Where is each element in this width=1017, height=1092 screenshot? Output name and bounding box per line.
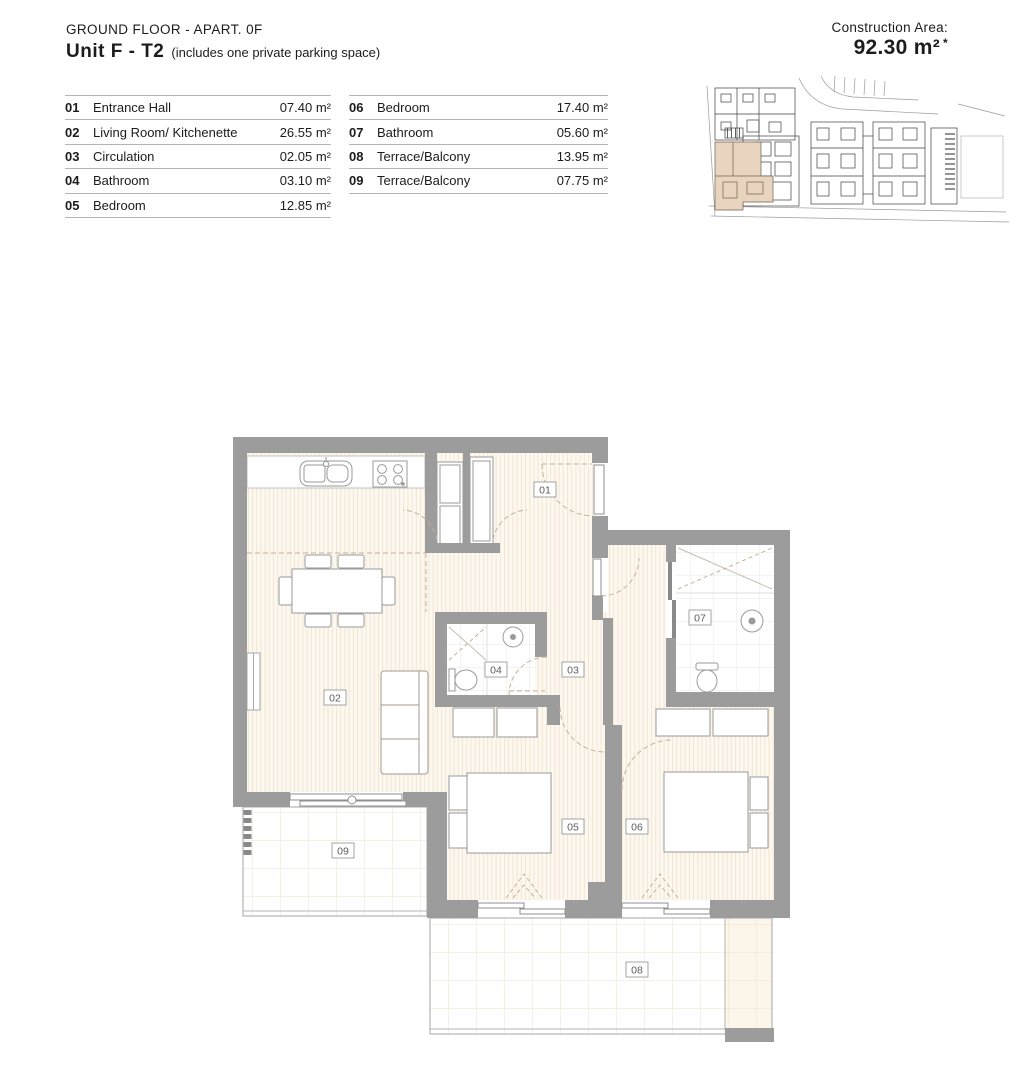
washbasin xyxy=(503,627,523,647)
site-building-right xyxy=(931,128,1003,204)
radiator xyxy=(247,653,260,710)
dining-table xyxy=(292,569,382,613)
kitchen xyxy=(247,456,425,488)
room-label-06: 06 xyxy=(626,819,648,834)
terrace-09 xyxy=(243,807,427,916)
svg-text:08: 08 xyxy=(631,965,643,977)
floor-plan: 01 02 03 04 05 xyxy=(233,437,790,1042)
room-label-08: 08 xyxy=(626,962,648,977)
room-label-09: 09 xyxy=(332,843,354,858)
site-unit-highlight xyxy=(715,142,773,210)
plan-sheet: GROUND FLOOR - APART. 0F Unit F - T2(inc… xyxy=(0,0,1017,1092)
wardrobe xyxy=(656,709,710,736)
svg-text:07: 07 xyxy=(694,613,706,625)
bedroom-05-window xyxy=(478,903,565,914)
room-label-02: 02 xyxy=(324,690,346,705)
terrace-08 xyxy=(430,918,772,1034)
sofa xyxy=(381,671,428,774)
room-label-04: 04 xyxy=(485,662,507,677)
room-label-03: 03 xyxy=(562,662,584,677)
svg-text:02: 02 xyxy=(329,693,341,705)
bed xyxy=(449,773,551,853)
svg-text:09: 09 xyxy=(337,846,349,858)
site-stairs xyxy=(725,128,743,138)
room-label-01: 01 xyxy=(534,482,556,497)
svg-text:06: 06 xyxy=(631,822,643,834)
stove xyxy=(373,461,407,487)
living-room-slider xyxy=(290,794,406,806)
room-label-05: 05 xyxy=(562,819,584,834)
room-label-07: 07 xyxy=(689,610,711,625)
hall-door-leaf xyxy=(593,559,601,596)
toilet xyxy=(449,669,477,691)
toilet xyxy=(696,663,718,692)
svg-text:04: 04 xyxy=(490,665,502,677)
kitchen-sink xyxy=(300,457,352,486)
entrance-door-leaf xyxy=(594,465,604,514)
svg-text:01: 01 xyxy=(539,485,551,497)
wardrobe xyxy=(497,708,537,737)
site-plan xyxy=(707,76,1009,222)
svg-text:05: 05 xyxy=(567,822,579,834)
sliding-door xyxy=(668,558,676,644)
washbasin xyxy=(741,610,763,632)
svg-text:03: 03 xyxy=(567,665,579,677)
site-building-middle xyxy=(811,122,925,204)
wardrobe xyxy=(713,709,768,736)
wardrobe xyxy=(453,708,494,737)
bedroom-06-window xyxy=(622,903,710,914)
drawings: 01 02 03 04 05 xyxy=(0,0,1017,1092)
